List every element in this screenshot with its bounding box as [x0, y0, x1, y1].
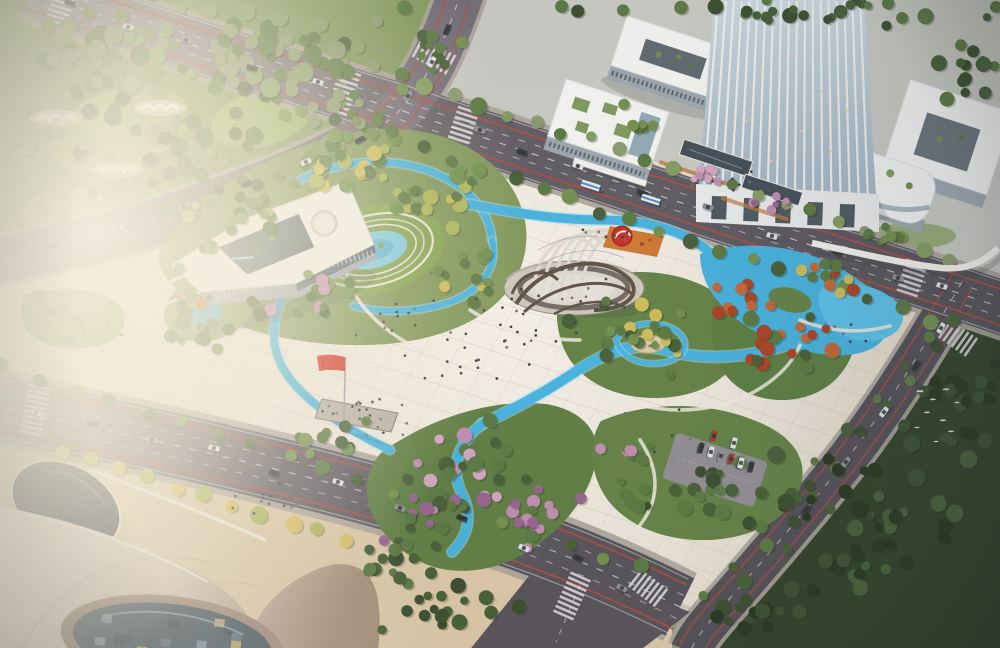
aerial-park-rendering [0, 0, 1000, 648]
atmosphere [0, 0, 1000, 648]
scene-canvas [0, 0, 1000, 648]
